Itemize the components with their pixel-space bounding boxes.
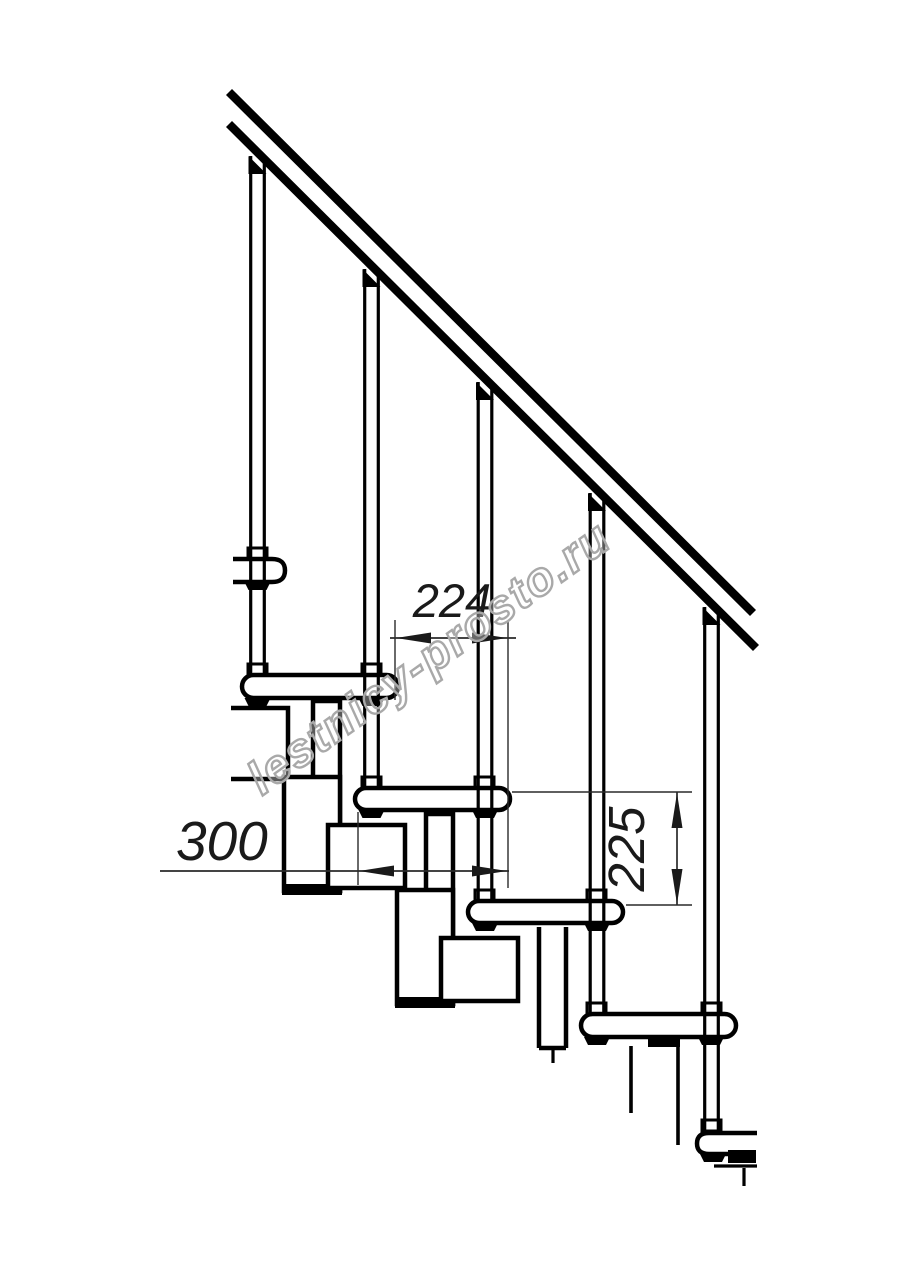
tread-plate bbox=[233, 559, 285, 582]
module-square-2 bbox=[441, 938, 518, 1001]
module-group-3-cut bbox=[539, 927, 566, 1063]
tread-underside-connector bbox=[584, 1037, 610, 1045]
tread-0 bbox=[233, 548, 285, 590]
baluster-1 bbox=[249, 156, 267, 675]
tread-plate bbox=[581, 1014, 736, 1037]
arrowhead-right bbox=[472, 866, 507, 877]
tread-underside-connector bbox=[359, 810, 385, 818]
module-group-5-cut bbox=[714, 1166, 757, 1186]
staircase-technical-drawing: 224 300 225 lestnicy-prosto.ru bbox=[0, 0, 914, 1280]
arrowhead-down bbox=[672, 869, 683, 904]
dimension-value-tread: 300 bbox=[176, 810, 268, 872]
tread-underside-connector bbox=[245, 582, 271, 590]
tread-underside-connector bbox=[245, 698, 271, 706]
baluster-5 bbox=[703, 607, 721, 1131]
tread-underside-connector bbox=[698, 1037, 724, 1045]
watermark-text: lestnicy-prosto.ru bbox=[237, 510, 620, 805]
tread-underside-band bbox=[728, 1150, 756, 1163]
dimension-value-rise: 225 bbox=[598, 806, 655, 893]
tread-plate bbox=[468, 901, 623, 923]
drawing-page: 224 300 225 lestnicy-prosto.ru bbox=[0, 0, 914, 1280]
tread-underside-connector bbox=[472, 923, 498, 931]
tread-underside-band bbox=[648, 1038, 680, 1047]
module-group-4-cut bbox=[631, 1046, 678, 1145]
dimension-rise-225: 225 bbox=[512, 792, 692, 905]
module-square-1 bbox=[328, 825, 405, 888]
tread-underside-connector bbox=[584, 923, 610, 931]
arrowhead-up bbox=[672, 793, 683, 828]
tread-underside-connector bbox=[472, 810, 498, 818]
module-stem-3-cut bbox=[539, 927, 566, 1048]
tread-underside-connector bbox=[700, 1154, 726, 1162]
tread-plate bbox=[355, 788, 510, 810]
